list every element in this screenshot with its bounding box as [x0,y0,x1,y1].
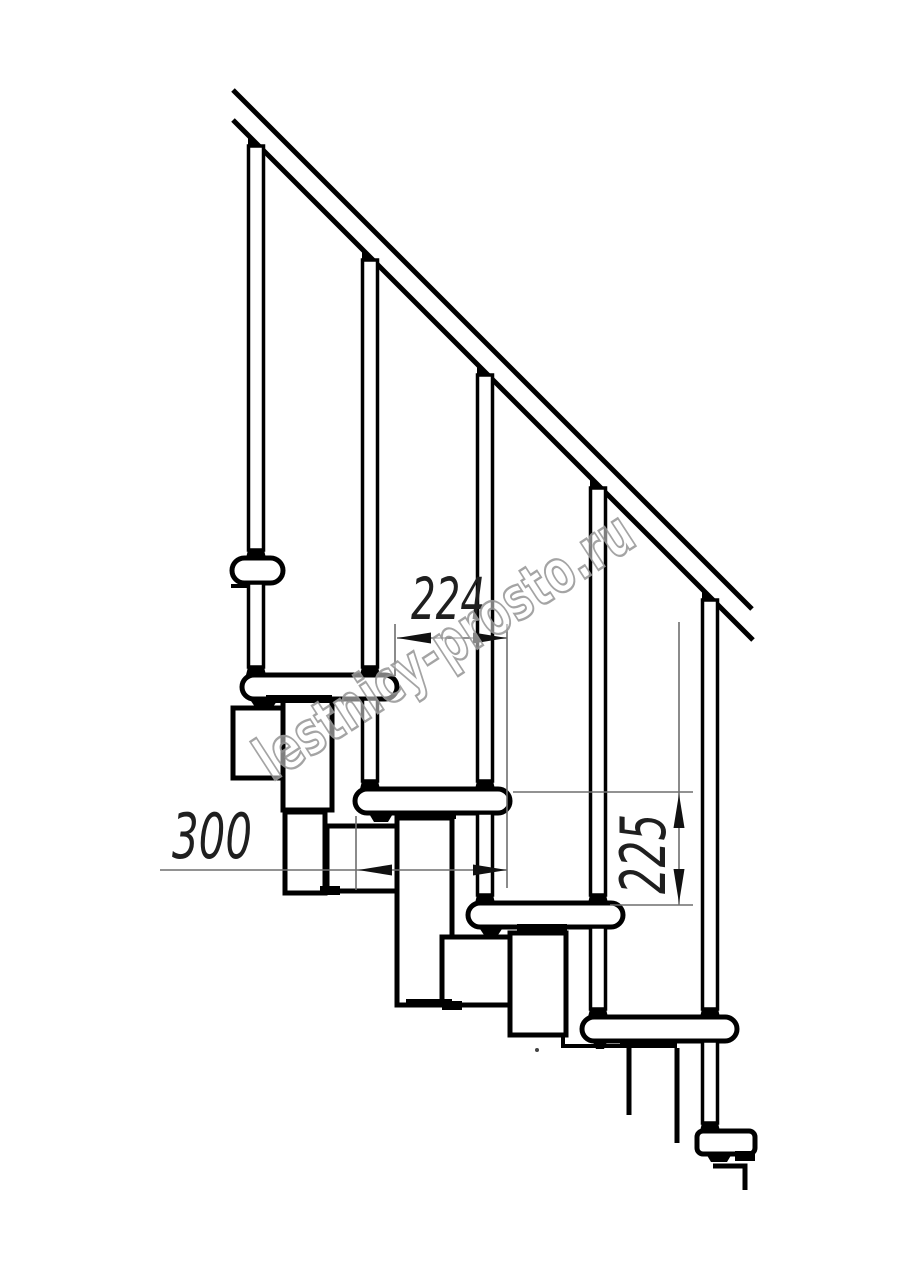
baluster-1 [246,138,266,675]
connector-strip [517,924,567,933]
module-bottom-band [320,886,340,895]
tread-5 [582,1017,737,1041]
dimension-225-label: 225 [607,814,680,894]
tread-1-end [232,558,283,583]
baluster-post [363,260,378,667]
staircase-technical-drawing: 224 300 225 lestnicy-prosto.ru [0,0,914,1280]
module-under-step-4-column [510,933,566,1035]
baluster-post [478,813,493,895]
connector-strip [620,1039,677,1048]
module-under-step-6-contour [713,1166,745,1190]
connector-wedge [478,926,504,935]
tread-3 [355,789,510,813]
connector-wedge [705,1152,733,1162]
baluster-post [591,927,606,1009]
tread-mount-wedge [588,895,608,903]
tread-mount-wedge [588,1009,608,1017]
tread-mount-wedge [475,895,495,903]
module-bottom-band [442,1001,462,1010]
baluster-post [703,600,718,1009]
dimension-300-label: 300 [172,800,252,873]
tread-mount-wedge [700,1123,720,1131]
dimension-225-label-group: 225 [607,814,680,894]
stray-dot [535,1048,539,1052]
tread-mount-wedge [246,550,266,558]
watermark-text: lestnicy-prosto.ru [242,497,647,794]
baluster-post [703,1041,718,1123]
connector-strip [735,1151,755,1161]
connector-wedge [368,812,394,822]
tread-4 [468,903,623,927]
tread-mount-wedge [475,781,495,789]
module-under-step-4-square [442,937,518,1005]
connector-strip [396,811,456,819]
baluster-post [249,583,264,667]
tread-mount-wedge [700,1009,720,1017]
tread-mount-wedge [360,781,380,789]
tread-6-partial [697,1131,755,1154]
baluster-post [249,146,264,550]
module-under-step-3-square [327,826,397,891]
baluster-5 [700,592,720,1131]
module-under-step-2-lower [285,812,325,893]
tread-mount-wedge [246,667,266,675]
